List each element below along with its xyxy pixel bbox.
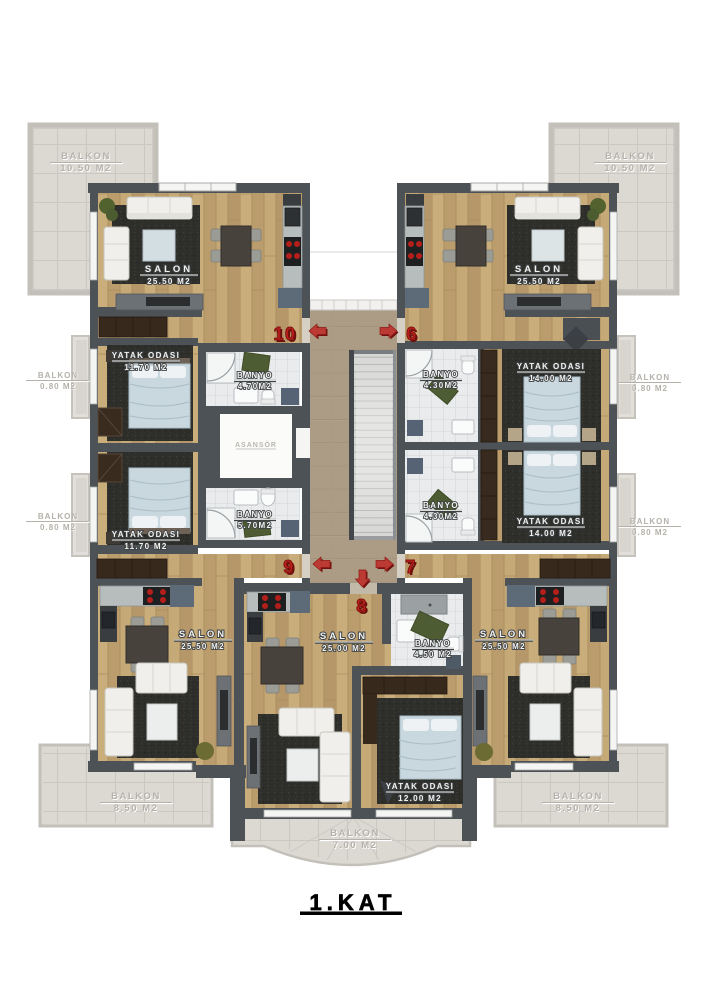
svg-text:14.00 M2: 14.00 M2 [529, 374, 573, 383]
svg-text:7: 7 [405, 557, 417, 577]
svg-text:8.50 M2: 8.50 M2 [556, 803, 601, 814]
svg-text:SALON: SALON [480, 629, 528, 640]
svg-text:SALON: SALON [145, 264, 193, 275]
svg-text:25.00 M2: 25.00 M2 [322, 644, 366, 653]
svg-text:9: 9 [283, 557, 295, 577]
svg-text:ASANSÖR: ASANSÖR [235, 440, 277, 449]
svg-text:0.80 M2: 0.80 M2 [632, 528, 668, 537]
svg-text:SALON: SALON [320, 631, 368, 642]
svg-text:BALKON: BALKON [630, 373, 670, 382]
svg-text:12.00 M2: 12.00 M2 [398, 794, 442, 803]
svg-text:BANYO: BANYO [415, 639, 451, 648]
svg-text:1.KAT: 1.KAT [310, 890, 397, 915]
svg-text:4.50 M2: 4.50 M2 [414, 650, 452, 659]
svg-text:BALKON: BALKON [111, 791, 161, 802]
svg-text:YATAK ODASI: YATAK ODASI [112, 530, 181, 539]
svg-text:BALKON: BALKON [38, 371, 78, 380]
svg-text:5.70M2: 5.70M2 [238, 521, 272, 530]
svg-text:BALKON: BALKON [330, 828, 380, 839]
svg-text:8: 8 [356, 596, 368, 616]
svg-text:YATAK ODASI: YATAK ODASI [517, 517, 586, 526]
svg-text:4.30M2: 4.30M2 [424, 512, 458, 521]
svg-text:BALKON: BALKON [61, 151, 111, 162]
svg-text:YATAK ODASI: YATAK ODASI [517, 362, 586, 371]
svg-text:25.50 M2: 25.50 M2 [147, 277, 191, 286]
svg-text:10: 10 [273, 324, 296, 344]
svg-text:BANYO: BANYO [237, 510, 273, 519]
svg-text:BALKON: BALKON [630, 517, 670, 526]
svg-text:0.80 M2: 0.80 M2 [40, 523, 76, 532]
svg-text:BALKON: BALKON [553, 791, 603, 802]
svg-text:0.80 M2: 0.80 M2 [632, 384, 668, 393]
svg-text:YATAK ODASI: YATAK ODASI [112, 351, 181, 360]
svg-text:0.80 M2: 0.80 M2 [40, 382, 76, 391]
svg-text:25.50 M2: 25.50 M2 [517, 277, 561, 286]
svg-text:BANYO: BANYO [237, 371, 273, 380]
svg-text:25.50 M2: 25.50 M2 [181, 642, 225, 651]
svg-text:8.50 M2: 8.50 M2 [114, 803, 159, 814]
svg-text:7.00 M2: 7.00 M2 [333, 840, 378, 851]
svg-text:SALON: SALON [515, 264, 563, 275]
svg-text:4.70M2: 4.70M2 [238, 382, 272, 391]
svg-text:BALKON: BALKON [605, 151, 655, 162]
svg-text:10.50 M2: 10.50 M2 [60, 163, 112, 174]
svg-text:11.70 M2: 11.70 M2 [124, 363, 167, 372]
svg-text:BANYO: BANYO [423, 370, 459, 379]
svg-text:14.00 M2: 14.00 M2 [529, 529, 573, 538]
svg-text:SALON: SALON [179, 629, 227, 640]
svg-text:11.70 M2: 11.70 M2 [124, 542, 167, 551]
svg-text:25.50 M2: 25.50 M2 [482, 642, 526, 651]
svg-text:BANYO: BANYO [423, 501, 459, 510]
svg-text:BALKON: BALKON [38, 512, 78, 521]
svg-text:4.30M2: 4.30M2 [424, 381, 458, 390]
svg-text:10.50 M2: 10.50 M2 [604, 163, 656, 174]
svg-text:YATAK ODASI: YATAK ODASI [386, 782, 455, 791]
svg-text:6: 6 [406, 324, 418, 344]
